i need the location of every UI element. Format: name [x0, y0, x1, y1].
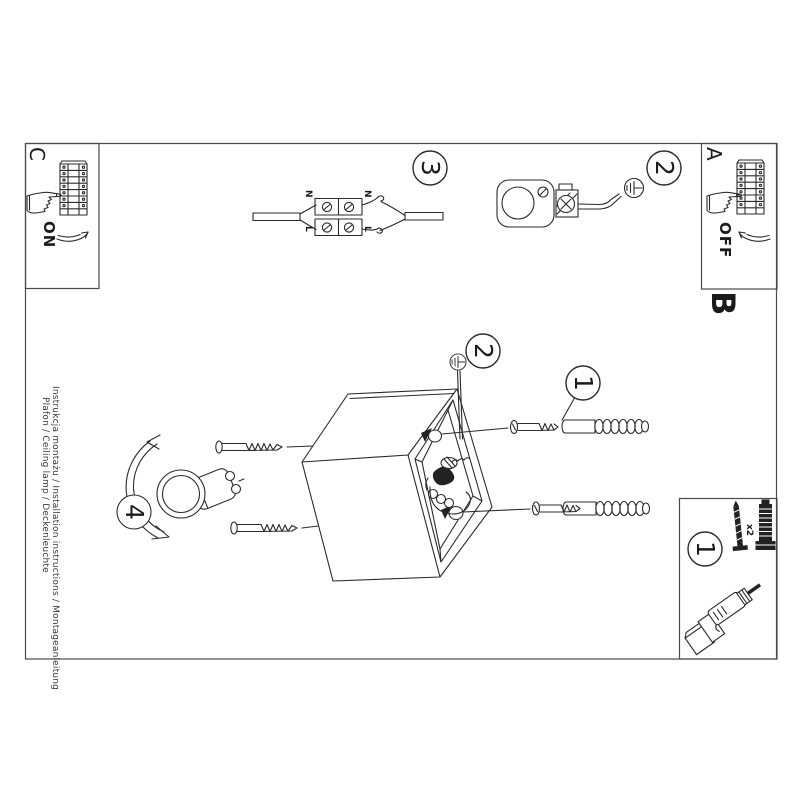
- parts-quantity-label: x2: [744, 524, 753, 536]
- instruction-sheet: C ON A OFF B 3 2 2 1 4 1 N N L L x2 Inst…: [0, 0, 800, 800]
- light-switch-icon: [737, 160, 764, 214]
- terminal-block-upper: [315, 199, 362, 216]
- wire-label-n-right: N: [362, 190, 371, 198]
- toggle-arrow-icon: [57, 232, 88, 241]
- wall-plug-icon: [756, 500, 776, 551]
- wire-label-l-right: L: [362, 226, 371, 232]
- terminal-block-lower: [315, 219, 362, 236]
- footer-title-line: Instrukcja montażu / Installation instru…: [50, 386, 59, 690]
- step-number-4: 4: [117, 495, 151, 529]
- line-art: [0, 0, 800, 800]
- mounting-screw: [231, 522, 297, 534]
- parts-box-content: [680, 500, 776, 655]
- cable-right: [405, 213, 443, 221]
- light-switch-icon: [60, 161, 87, 215]
- step-number-1-main: 1: [566, 366, 600, 400]
- section-b-label: B: [707, 291, 739, 315]
- wall-plug: [563, 502, 650, 516]
- wire-hook-upper: [362, 196, 405, 216]
- section-c-label: C: [27, 147, 47, 161]
- mounting-screw: [511, 421, 559, 434]
- step-number-2-main: 2: [466, 334, 500, 368]
- mounting-screw: [533, 502, 581, 515]
- parts-box-step-number: 1: [688, 532, 722, 566]
- wire-label-l-left: L: [303, 226, 312, 232]
- terminal-connector: [556, 184, 578, 217]
- switch-on-label: ON: [41, 221, 56, 248]
- wall-plug: [562, 420, 649, 434]
- bulb-pin: [232, 485, 241, 494]
- section-a-label: A: [704, 147, 724, 161]
- footer-product-line: Plafon / Ceiling lamp / Deckenleuchte: [40, 397, 49, 573]
- cable-left: [253, 213, 300, 221]
- ground-symbol-icon: [625, 179, 644, 198]
- bulb-pin: [226, 472, 235, 481]
- mounting-screw: [216, 441, 282, 453]
- earth-wire: [578, 194, 621, 209]
- cube-lamp-body: [302, 389, 492, 581]
- step-number-3: 3: [413, 151, 447, 185]
- toggle-arrow-icon: [739, 232, 770, 241]
- section-box-a: [702, 144, 778, 290]
- bulb-face: [157, 470, 205, 518]
- pointing-hand-icon: [27, 192, 61, 213]
- drill-icon: [680, 578, 772, 655]
- section-box-c: [26, 144, 100, 289]
- fixing-screws-and-plugs: [442, 366, 650, 516]
- wire-label-n-left: N: [303, 190, 312, 198]
- pointing-hand-icon: [707, 192, 741, 213]
- step-number-2-top: 2: [647, 151, 681, 185]
- switch-off-label: OFF: [717, 222, 732, 258]
